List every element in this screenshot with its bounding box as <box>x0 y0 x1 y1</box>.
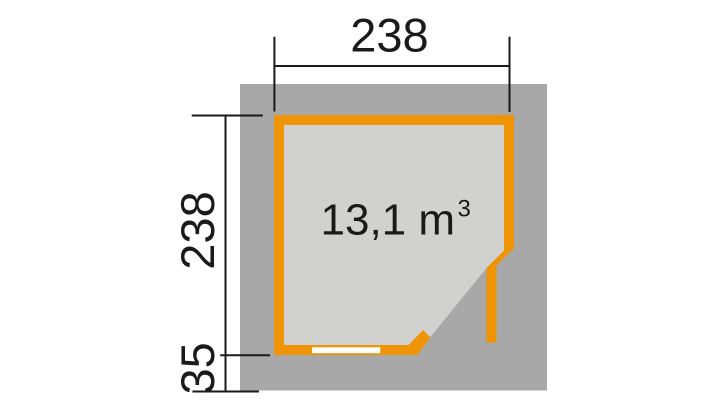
svg-text:35: 35 <box>171 342 224 394</box>
svg-text:13,1 m3: 13,1 m3 <box>321 196 471 245</box>
svg-text:238: 238 <box>171 191 224 269</box>
svg-text:238: 238 <box>350 9 428 62</box>
